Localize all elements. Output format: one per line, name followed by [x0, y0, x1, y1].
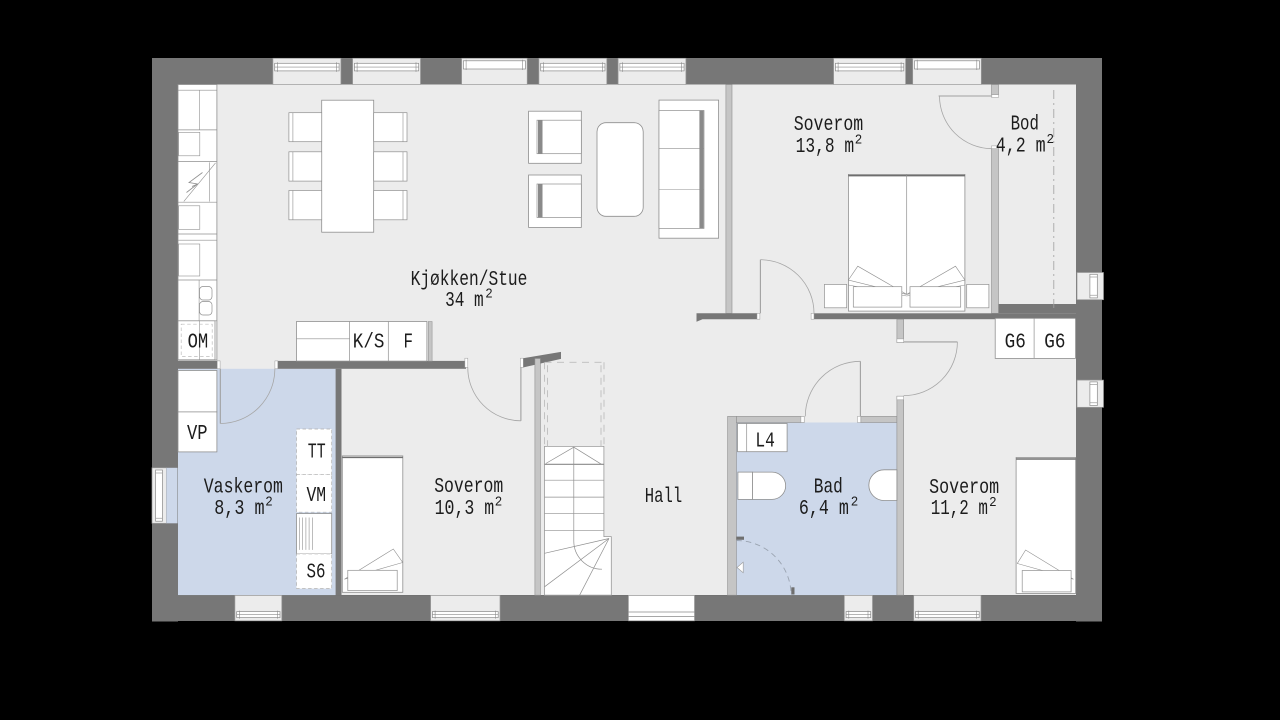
svg-text:OM: OM	[188, 330, 209, 354]
svg-text:VP: VP	[187, 422, 208, 446]
svg-text:G6: G6	[1005, 331, 1026, 355]
svg-text:F: F	[404, 330, 414, 354]
svg-text:8,3 m: 8,3 m	[214, 497, 264, 521]
svg-text:34 m: 34 m	[445, 289, 484, 313]
svg-text:Bad: Bad	[814, 475, 843, 499]
svg-text:2: 2	[1047, 132, 1055, 148]
svg-text:13,8 m: 13,8 m	[796, 135, 855, 159]
svg-text:S6: S6	[307, 560, 326, 584]
svg-text:TT: TT	[308, 440, 326, 464]
svg-text:4,2 m: 4,2 m	[996, 135, 1046, 159]
svg-text:Soverom: Soverom	[794, 113, 864, 137]
svg-text:2: 2	[989, 495, 997, 511]
svg-text:Hall: Hall	[645, 485, 682, 509]
svg-text:11,2 m: 11,2 m	[931, 497, 988, 521]
svg-text:6,4 m: 6,4 m	[799, 497, 849, 521]
svg-text:2: 2	[851, 495, 859, 511]
svg-text:2: 2	[485, 287, 493, 303]
svg-text:G6: G6	[1044, 331, 1065, 355]
svg-text:2: 2	[855, 133, 863, 149]
svg-text:2: 2	[495, 494, 503, 510]
svg-text:L4: L4	[755, 429, 775, 453]
svg-text:2: 2	[265, 495, 273, 511]
svg-text:K/S: K/S	[353, 330, 385, 354]
svg-text:10,3 m: 10,3 m	[435, 497, 495, 521]
svg-text:Bod: Bod	[1011, 112, 1039, 136]
svg-text:Soverom: Soverom	[434, 475, 503, 499]
svg-text:VM: VM	[307, 484, 327, 508]
